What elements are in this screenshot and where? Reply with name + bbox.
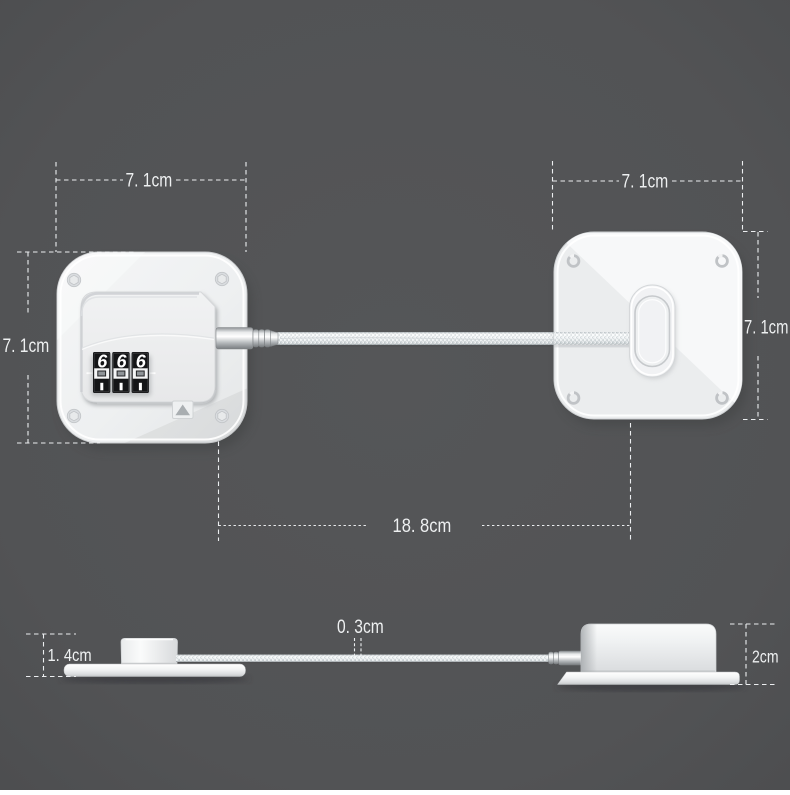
svg-text:1. 4cm: 1. 4cm xyxy=(48,646,92,665)
svg-text:7. 1cm: 7. 1cm xyxy=(744,317,788,338)
svg-text:2cm: 2cm xyxy=(752,647,779,667)
svg-text:0. 3cm: 0. 3cm xyxy=(337,616,384,638)
svg-text:7. 1cm: 7. 1cm xyxy=(126,169,173,191)
svg-text:7. 1cm: 7. 1cm xyxy=(622,170,669,192)
svg-text:18. 8cm: 18. 8cm xyxy=(393,515,452,536)
svg-text:7. 1cm: 7. 1cm xyxy=(3,335,50,357)
